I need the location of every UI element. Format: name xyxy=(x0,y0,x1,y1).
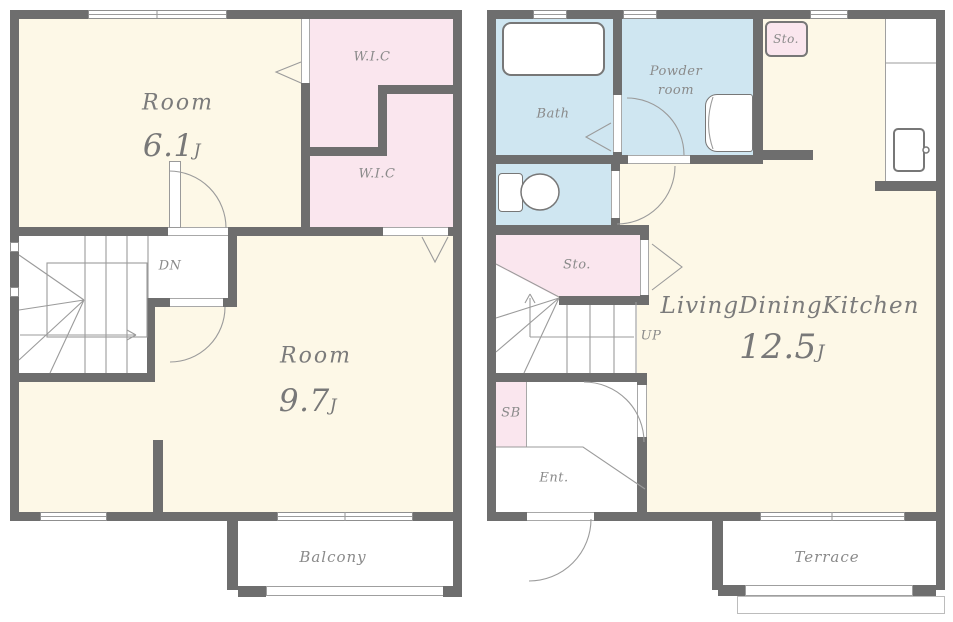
sto-door-opening xyxy=(640,240,649,295)
room61-size-unit: J xyxy=(194,141,201,161)
powder-room-line1: Powder xyxy=(650,62,702,81)
toilet-door-opening xyxy=(611,171,620,218)
balcony-label: Balcony xyxy=(299,548,366,566)
terrace-corner-left xyxy=(718,585,745,596)
refrigerator xyxy=(893,128,925,172)
sto-bottom-wall xyxy=(559,296,649,305)
terrace-label: Terrace xyxy=(794,548,859,566)
room61-name-label: Room xyxy=(142,91,214,116)
room97-size-value: 9.7 xyxy=(279,383,330,419)
entrance-label: Ent. xyxy=(539,471,568,486)
2f-room97-wall-stub xyxy=(153,440,163,512)
2f-wic-divider-c xyxy=(310,147,387,156)
1f-top-window-2 xyxy=(623,10,657,19)
balcony-corner-left xyxy=(238,586,266,597)
2f-hall-right-wall xyxy=(228,236,237,307)
ldk-name-label: LivingDiningKitchen xyxy=(661,293,920,319)
entrance-door-opening xyxy=(527,512,594,521)
powder-room-line2: room xyxy=(650,81,702,100)
entrance-door-arc xyxy=(529,519,591,581)
wall-under-bath-powder xyxy=(487,155,763,164)
powder-right-stub xyxy=(763,150,813,160)
2f-balcony-window xyxy=(277,512,413,521)
ldk-size-unit: J xyxy=(817,341,825,363)
powder-room-label: Powder room xyxy=(650,62,702,100)
wic-upper-label: W.I.C xyxy=(354,50,391,65)
terrace-corner-right xyxy=(913,585,936,596)
2f-top-window xyxy=(88,10,227,19)
vanity-sink xyxy=(705,94,753,152)
2f-bottom-window xyxy=(40,512,107,521)
wic-lower-label: W.I.C xyxy=(359,167,396,182)
1f-right-wall-extension xyxy=(936,512,945,590)
wall-entry-ldk-bottom xyxy=(637,437,647,512)
2f-wic-lower-opening xyxy=(383,227,448,236)
sb-label: SB xyxy=(501,406,520,421)
2f-stair-flight xyxy=(19,236,147,373)
terrace-left-wall xyxy=(712,518,723,590)
2f-left-slit-window-2 xyxy=(10,287,19,297)
bath-door-opening xyxy=(613,95,622,152)
counter-bottom-stub xyxy=(875,181,945,191)
room97-size-unit: J xyxy=(330,396,337,416)
2f-stair-bottom-wall xyxy=(10,373,155,382)
1f-bottom-window xyxy=(760,512,905,521)
ldk-size-value: 12.5 xyxy=(739,327,817,367)
floor-plan-canvas: Room 6.1J W.I.C W.I.C DN Room 9.7J Balco… xyxy=(0,0,953,622)
wall-entry-ldk-top xyxy=(637,373,647,385)
entry-ldk-door-opening xyxy=(637,385,647,437)
room97-name-label: Room xyxy=(280,344,352,369)
dn-label: DN xyxy=(159,259,182,274)
balcony-railing xyxy=(266,586,448,596)
2f-room61-door-leaf xyxy=(169,161,181,228)
powder-door-opening xyxy=(628,155,690,164)
room61-size-label: 6.1J xyxy=(143,128,201,164)
2f-right-wall-extension xyxy=(453,512,462,597)
terrace-railing xyxy=(745,585,913,596)
balcony-left-wall xyxy=(227,515,238,590)
2f-landing-wall-corner xyxy=(223,298,237,307)
wall-under-toilet xyxy=(487,225,649,235)
bath-label: Bath xyxy=(537,107,570,122)
toilet-tank xyxy=(498,173,523,212)
2f-room97-door-opening xyxy=(170,298,223,307)
2f-room61-door-opening xyxy=(168,227,228,236)
ldk-size-label: 12.5J xyxy=(739,327,825,367)
up-label: UP xyxy=(641,329,662,344)
1f-stair-bottom-wall xyxy=(487,373,647,382)
room61-size-value: 6.1 xyxy=(143,128,194,164)
2f-stair-right-wall xyxy=(147,298,155,382)
2f-left-slit-window-1 xyxy=(10,242,19,252)
sto-room-label: Sto. xyxy=(563,258,591,273)
sto-closet-label: Sto. xyxy=(773,32,799,46)
room97-size-label: 9.7J xyxy=(279,383,337,419)
2f-wic-divider-a xyxy=(378,85,453,94)
bathtub xyxy=(502,22,605,76)
1f-top-window-1 xyxy=(533,10,567,19)
wall-powder-right xyxy=(753,10,763,164)
terrace-step xyxy=(737,596,945,614)
2f-wic-divider-b xyxy=(378,85,387,156)
2f-wic-door-opening xyxy=(301,19,310,83)
1f-top-window-3 xyxy=(810,10,848,19)
